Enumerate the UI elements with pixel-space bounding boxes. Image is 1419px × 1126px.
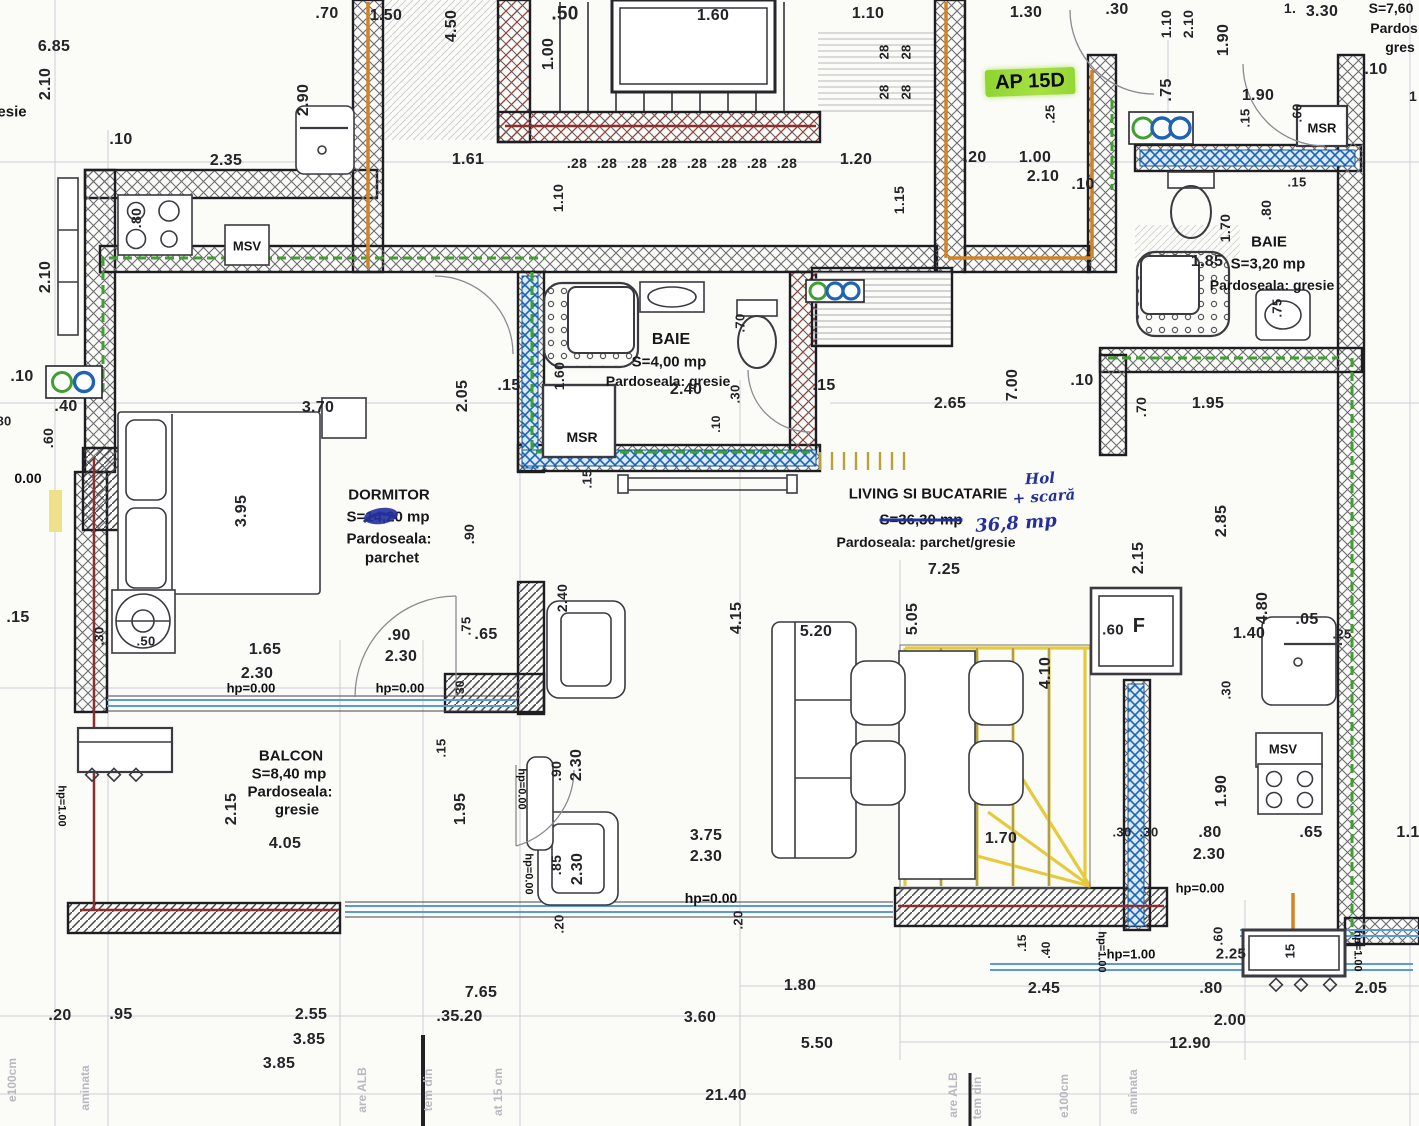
room-label: S=8,40 mp [252, 767, 327, 782]
level-label: hp=0.00 [376, 682, 425, 695]
dim-label: .95 [109, 1007, 132, 1023]
dim-label: 2.45 [1028, 981, 1060, 997]
dim-label: 3.30 [1306, 4, 1338, 20]
room-label: Pardoseala: [247, 785, 332, 800]
dim-label: .75 [1159, 78, 1175, 101]
dim-label: 1.60 [697, 8, 729, 24]
dim-label: 1.60 [552, 362, 566, 390]
dim-label: .15 [435, 739, 448, 758]
room-label: Pardoseala: parchet/gresie [837, 535, 1016, 549]
dim-label: .10 [109, 132, 132, 148]
dim-label: 2.40 [670, 382, 702, 398]
level-label: hp=1.00 [1352, 930, 1363, 971]
dim-label: 2.30 [385, 649, 417, 665]
dim-label: 5.05 [905, 603, 921, 635]
dim-label: 1.85 [1191, 254, 1223, 270]
dim-label: 1.70 [985, 831, 1017, 847]
dim-label: 4.05 [269, 836, 301, 852]
dim-label: .70 [315, 6, 338, 22]
dim-label: 28 [900, 44, 913, 59]
faint-spec-note: tem din [971, 1077, 983, 1120]
dim-label: 2.90 [296, 84, 312, 116]
dim-label: .30 [454, 680, 466, 698]
dim-label: 2.85 [1214, 505, 1230, 537]
faint-spec-note: e100cm [6, 1058, 18, 1102]
dim-label: 1.80 [784, 978, 816, 994]
dim-label: .28 [627, 156, 647, 170]
dim-label: 1.95 [453, 793, 469, 825]
dim-label: 1.90 [1216, 24, 1232, 56]
dim-label: 1.90 [1242, 88, 1274, 104]
dim-label: 7.00 [1005, 369, 1021, 401]
dim-label: 1.00 [1019, 150, 1051, 166]
dim-label: 3.95 [234, 495, 250, 527]
level-label: hp=1.00 [1107, 948, 1156, 961]
dim-label: 1.65 [249, 642, 281, 658]
dim-label: 1.20 [840, 152, 872, 168]
dim-label: .28 [657, 156, 677, 170]
dim-label: .60 [1212, 927, 1225, 946]
room-label: MSR [566, 430, 597, 444]
dim-label: 1 [1409, 89, 1417, 103]
dim-label: .15 [1239, 109, 1252, 128]
dim-label: .80 [1199, 981, 1222, 997]
dim-label: .75 [1271, 299, 1284, 318]
dim-label: 1.30 [1010, 5, 1042, 21]
dim-label: 1.10 [551, 184, 565, 212]
dim-label: .30 [1140, 826, 1159, 839]
dim-label: 1.15 [892, 186, 906, 214]
dim-label: .80 [1259, 200, 1273, 220]
dim-label: .15 [1288, 176, 1307, 189]
dim-label: .28 [687, 156, 707, 170]
dim-label: .30 [729, 385, 742, 404]
dim-label: 2.00 [1214, 1013, 1246, 1029]
dim-label: .30 [1105, 2, 1128, 18]
dim-label: 4.15 [729, 602, 745, 634]
dim-label: .60 [1291, 104, 1304, 123]
dim-label: .80 [129, 208, 143, 228]
room-label: S=7,60 [1369, 1, 1414, 15]
dim-label: 1. [1284, 1, 1296, 15]
room-label: parchet [365, 551, 419, 566]
dim-label: 2.35 [210, 153, 242, 169]
dim-label: .28 [567, 156, 587, 170]
dim-label: .70 [1134, 397, 1148, 417]
dim-label: 28 [878, 44, 891, 59]
dim-label: .15 [812, 378, 835, 394]
dim-label: 4.80 [1255, 592, 1271, 624]
dim-label: 2.25 [1216, 947, 1246, 962]
handwritten-note: + scară [1012, 487, 1076, 506]
room-label-struck: S=36,30 mp [880, 513, 963, 528]
dim-label: .30 [1220, 681, 1233, 700]
room-label: Pardoseala: gresie [606, 374, 731, 388]
dim-label: .10 [1070, 373, 1093, 389]
dim-label: 1.10 [852, 6, 884, 22]
dim-label: 2.05 [455, 380, 471, 412]
dim-label: 28 [900, 84, 913, 99]
room-label: S=3,20 mp [1231, 257, 1306, 272]
level-label: hp=0.00 [516, 768, 527, 809]
plan-labels: .701.504.50.501.001.601.10282828281.30.3… [0, 0, 1419, 1126]
dim-label: 2.10 [1027, 169, 1059, 185]
dim-label: 5.20 [800, 624, 832, 640]
floor-plan: .701.504.50.501.001.601.10282828281.30.3… [0, 0, 1419, 1126]
dim-label: 2.10 [38, 68, 54, 100]
dim-label: .50 [137, 635, 156, 648]
dim-label: .10 [1364, 62, 1387, 78]
dim-label: .60 [1102, 623, 1124, 638]
dim-label: 6.85 [38, 39, 70, 55]
level-label: hp=0.00 [227, 682, 276, 695]
level-label: hp=0.00 [685, 891, 738, 905]
dim-label: .85 [549, 855, 563, 875]
faint-spec-note: tem din [422, 1069, 434, 1112]
dim-label: 21.40 [705, 1088, 747, 1104]
dim-label: .90 [549, 761, 563, 781]
room-label: S=4,00 mp [632, 355, 707, 370]
dim-label: 4.10 [1038, 657, 1054, 689]
room-label: BAIE [652, 332, 690, 348]
room-label: gresie [275, 803, 319, 818]
room-label: DORMITOR [348, 488, 429, 503]
dim-label: 4.50 [444, 10, 460, 42]
dim-label: .30 [93, 627, 106, 646]
faint-spec-note: are ALB [356, 1067, 368, 1113]
room-label: LIVING SI BUCATARIE [849, 487, 1008, 502]
faint-spec-note: are ALB [947, 1072, 959, 1118]
dim-label: 2.65 [934, 396, 966, 412]
dim-label: .40 [54, 399, 77, 415]
dim-label: .28 [777, 156, 797, 170]
dim-label: .80 [1198, 825, 1221, 841]
dim-label: .20 [553, 915, 566, 934]
dim-label: 1.70 [1218, 214, 1232, 242]
dim-label: 1.90 [1214, 775, 1230, 807]
level-label: 0.00 [14, 471, 41, 485]
dim-label: .50 [551, 5, 578, 24]
dim-label: 2.15 [1131, 542, 1147, 574]
dim-label: .20 [732, 911, 745, 930]
dim-label: 2.30 [1193, 847, 1225, 863]
dim-label: .15 [6, 610, 29, 626]
dim-label: .28 [597, 156, 617, 170]
dim-label: 1.95 [1192, 396, 1224, 412]
dim-label: 3.85 [293, 1032, 325, 1048]
room-label: Pardos [1370, 21, 1417, 35]
dim-label: .25 [1044, 105, 1057, 124]
dim-label: .15 [497, 378, 520, 394]
room-label: Pardoseala: gresie [1210, 278, 1335, 292]
dim-label: 2.30 [690, 849, 722, 865]
dim-label: F [1133, 616, 1146, 636]
dim-label: .10 [710, 415, 722, 433]
dim-label: .40 [1040, 941, 1052, 959]
dim-label: .15 [1016, 934, 1028, 952]
level-label: hp=0.00 [1176, 882, 1225, 895]
dim-label: .20 [48, 1008, 71, 1024]
faint-spec-note: aminata [79, 1065, 91, 1110]
dim-label: .90 [387, 628, 410, 644]
dim-label: 2.30 [569, 749, 585, 781]
room-label: S=14,20 mp [347, 510, 430, 525]
dim-label: 1.00 [541, 38, 557, 70]
dim-label: .70 [734, 314, 747, 333]
dim-label: 28 [878, 84, 891, 99]
room-label: gres [1385, 40, 1415, 54]
room-label: MSV [1269, 743, 1297, 756]
dim-label: .25 [1333, 628, 1352, 641]
dim-label: 2.10 [1181, 10, 1195, 38]
dim-label: .90 [462, 524, 476, 544]
dim-label: 1.61 [452, 152, 484, 168]
dim-label: 2.55 [295, 1007, 327, 1023]
dim-label: .35 [436, 1009, 459, 1025]
dim-label: .20 [459, 1009, 482, 1025]
dim-label: 12.90 [1169, 1036, 1211, 1052]
dim-label: 3.60 [684, 1010, 716, 1026]
faint-spec-note: e100cm [1058, 1074, 1070, 1118]
dim-label: 3.70 [302, 400, 334, 416]
dim-label: 2.30 [570, 853, 586, 885]
dim-label: .60 [41, 428, 55, 448]
dim-label: 80 [0, 415, 12, 428]
level-label: hp=1.00 [56, 785, 67, 826]
dim-label: 2.40 [555, 584, 569, 612]
dim-label: 3.85 [263, 1056, 295, 1072]
dim-label: 2.10 [38, 261, 54, 293]
dim-label: 2.05 [1355, 981, 1387, 997]
handwritten-note: 36,8 mp [975, 512, 1058, 536]
dim-label: 1.1 [1396, 825, 1419, 841]
level-label: hp=0.00 [523, 853, 534, 894]
dim-label: .10 [10, 369, 33, 385]
dim-label: .30 [1113, 826, 1132, 839]
dim-label: .05 [1295, 612, 1318, 628]
dim-label: 1.40 [1233, 626, 1265, 642]
dim-label: 1.50 [370, 8, 402, 24]
dim-label: .28 [717, 156, 737, 170]
dim-label: 3.75 [690, 828, 722, 844]
dim-label: .10 [1071, 177, 1094, 193]
dim-label: .65 [1299, 825, 1322, 841]
dim-label: .65 [474, 627, 497, 643]
room-label: Pardoseala: [346, 532, 431, 547]
dim-label: 7.65 [465, 985, 497, 1001]
room-label: MSR [1308, 122, 1337, 135]
dim-label: 5.50 [801, 1036, 833, 1052]
dim-label: .15 [581, 470, 594, 489]
faint-spec-note: aminata [1127, 1069, 1139, 1114]
handwritten-note: Hol [1025, 471, 1056, 488]
dim-label: 7.25 [928, 562, 960, 578]
room-label: BAIE [1251, 235, 1287, 250]
room-label: esie [0, 105, 27, 120]
dim-label: 1.10 [1159, 10, 1173, 38]
dim-label: 2.15 [224, 793, 240, 825]
faint-spec-note: at 15 cm [492, 1068, 504, 1116]
level-label: hp=1.00 [1096, 931, 1107, 972]
dim-label: .28 [747, 156, 767, 170]
apartment-tag: AP 15D [985, 67, 1076, 97]
dim-label: .75 [460, 617, 473, 636]
room-label: MSV [233, 240, 261, 253]
dim-label: 15 [1284, 943, 1297, 958]
dim-label: .20 [963, 150, 986, 166]
room-label: BALCON [259, 749, 323, 764]
